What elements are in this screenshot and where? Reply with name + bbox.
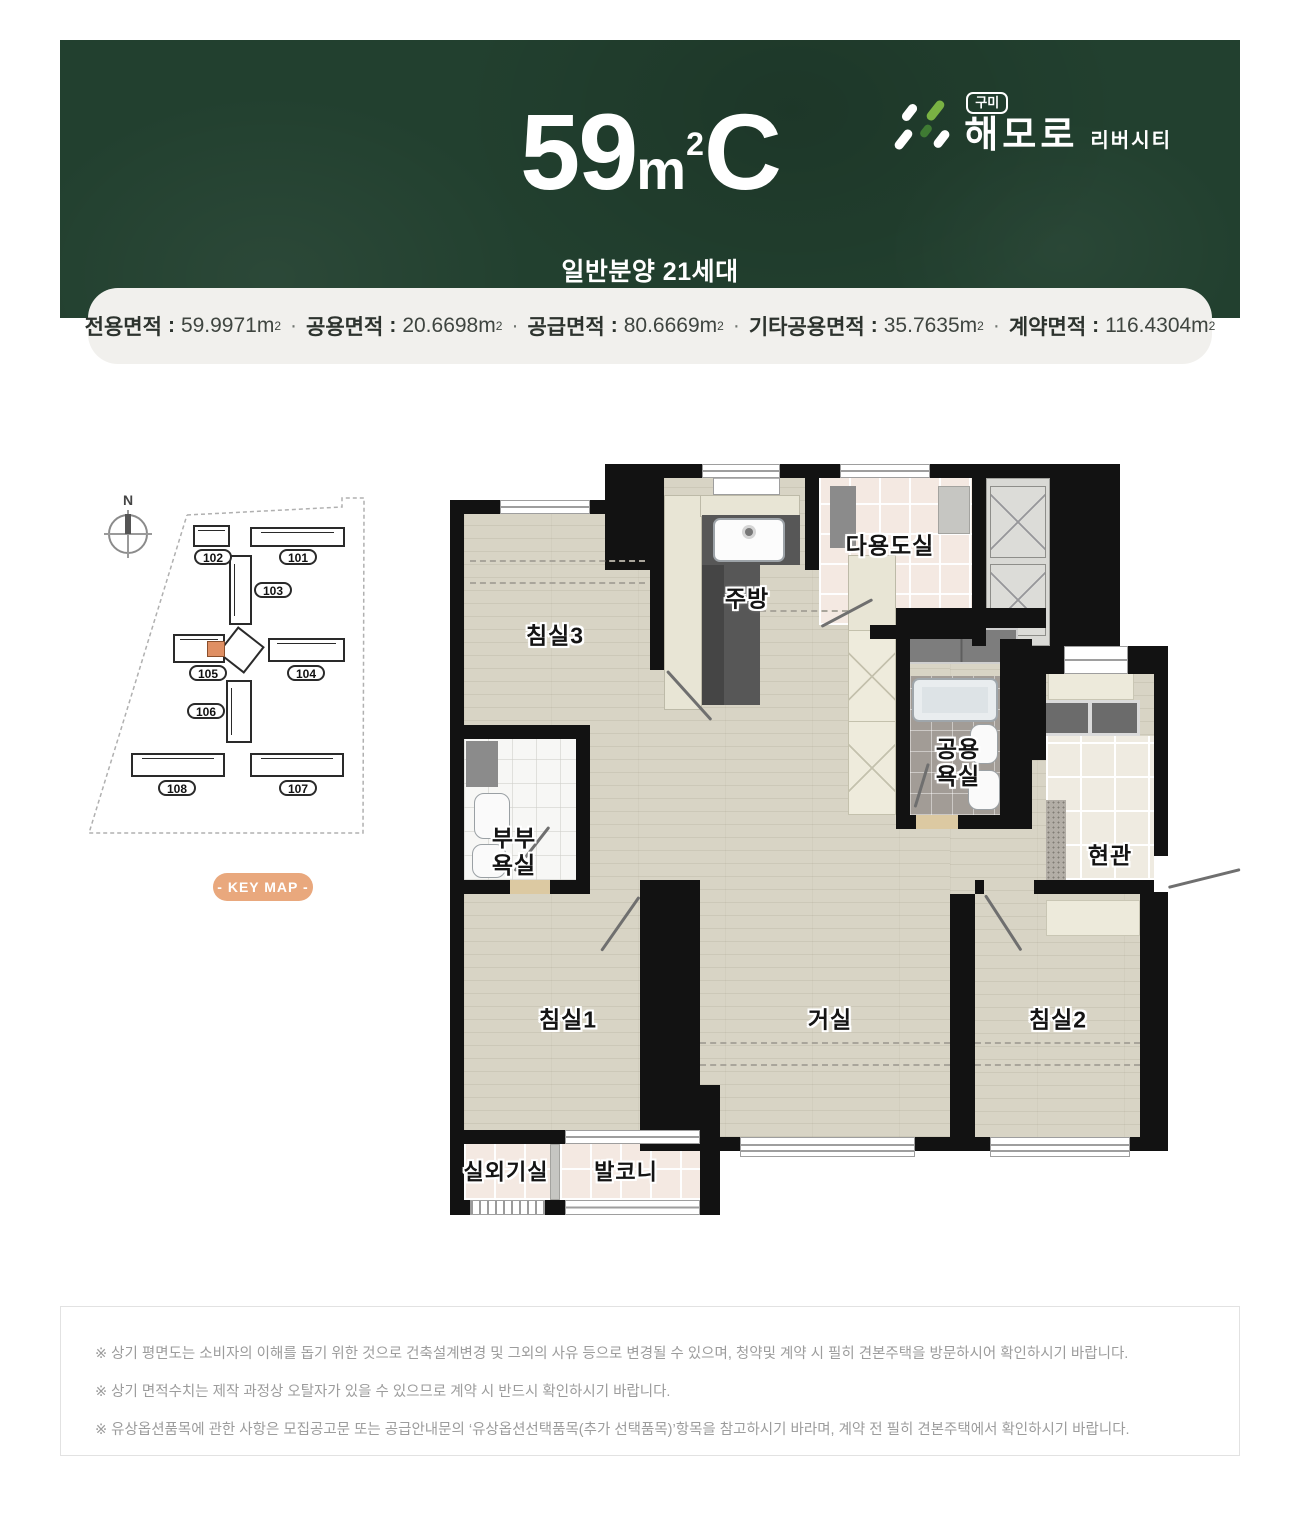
room-label-utility: 다용도실: [846, 533, 935, 560]
kitchen-counter-edge: [702, 565, 724, 705]
disclaimer-box: ※ 상기 평면도는 소비자의 이해를 돕기 위한 것으로 건축설계변경 및 그외…: [60, 1306, 1240, 1456]
wall: [450, 880, 510, 894]
dashed-line: [470, 582, 645, 584]
utility-cabinet: [938, 486, 970, 534]
room-label-shared-bath: 공용욕실: [936, 736, 980, 790]
building-102: [193, 525, 230, 547]
building-104: [268, 638, 345, 662]
elevator-shaft: [990, 486, 1046, 558]
building-101: [250, 527, 345, 547]
building-label: 101: [279, 549, 317, 565]
balcony-door-window: [565, 1130, 700, 1144]
building-103: [229, 555, 252, 625]
area-label: 공급면적: [527, 311, 604, 341]
wall: [1032, 646, 1064, 674]
living-window: [740, 1137, 915, 1157]
room-label-master-bath: 부부욕실: [492, 825, 536, 879]
room-label-balcony: 발코니: [594, 1159, 658, 1186]
built-in-cabinet: [1046, 900, 1140, 936]
wall: [450, 725, 590, 739]
floor-plan: 침실3 주방 다용도실 공용욕실 현관 부부욕실 침실1 거실 침실2 실외기실…: [450, 460, 1190, 1235]
building-label: 107: [279, 780, 317, 796]
wall: [1128, 646, 1168, 674]
header-banner: 59m2C 일반분양 21세대 구미 해모로리버시티: [60, 40, 1240, 318]
logo-icon: [898, 98, 952, 154]
wall: [1154, 892, 1168, 1151]
dashed-line: [700, 1042, 950, 1044]
page: { "header": { "unit_size": "59", "unit_m…: [0, 0, 1300, 1540]
wall: [1140, 894, 1154, 1151]
wall: [896, 639, 910, 829]
area-label: 공용면적: [306, 311, 383, 341]
logo-brand-name: 해모로: [964, 114, 1078, 155]
logo-text: 구미 해모로리버시티: [964, 92, 1172, 154]
wall: [640, 880, 700, 1151]
room-label-entrance: 현관: [1088, 843, 1132, 870]
building-108: [131, 753, 225, 777]
room-label-bedroom3: 침실3: [526, 623, 584, 650]
logo-brand-suffix: 리버시티: [1090, 131, 1172, 154]
building-label: 106: [187, 703, 225, 719]
key-map-badge: - KEY MAP -: [213, 873, 313, 901]
dashed-line: [975, 1042, 1140, 1044]
storage-column: [848, 721, 896, 815]
room-label-bedroom2: 침실2: [1029, 1007, 1087, 1034]
area-value: 116.4304: [1105, 314, 1191, 338]
wall: [1050, 464, 1120, 646]
window: [500, 500, 590, 514]
kitchen-sink: [713, 518, 785, 562]
building-label: 103: [254, 582, 292, 598]
disclaimer-line: ※ 유상옵션품목에 관한 사항은 모집공고문 또는 공급안내문의 ‘유상옵션선택…: [95, 1418, 1239, 1439]
wall: [650, 514, 664, 670]
highlighted-unit: [207, 641, 225, 657]
wall: [1000, 639, 1032, 829]
kitchen-cabinet: [700, 495, 800, 517]
brand-logo: 구미 해모로리버시티: [898, 92, 1172, 154]
wall: [450, 500, 464, 1215]
door-threshold: [916, 815, 958, 829]
area-value: 59.9971: [181, 314, 257, 338]
unit-size: 59: [520, 91, 636, 212]
kitchen-cabinet: [664, 495, 702, 710]
room-label-living: 거실: [808, 1007, 852, 1034]
area-summary-bar: 전용면적:59.9971m2·공용면적:20.6698m2·공급면적:80.66…: [88, 288, 1212, 364]
disclaimer-line: ※ 상기 면적수치는 제작 과정상 오탈자가 있을 수 있으므로 계약 시 반드…: [95, 1380, 1239, 1401]
wall: [958, 815, 1032, 829]
disclaimer-line: ※ 상기 평면도는 소비자의 이해를 돕기 위한 것으로 건축설계변경 및 그외…: [95, 1342, 1239, 1363]
window: [702, 464, 780, 478]
logo-city-badge: 구미: [966, 92, 1008, 114]
building-label: 104: [287, 665, 325, 681]
unit-subtitle: 일반분양 21세대: [60, 252, 1240, 288]
balcony-divider: [550, 1144, 560, 1200]
front-door-swing: [1168, 868, 1241, 889]
room-label-bedroom1: 침실1: [539, 1007, 597, 1034]
door-threshold: [510, 880, 550, 894]
room-label-ac-room: 실외기실: [464, 1159, 549, 1186]
area-label: 계약면적: [1009, 311, 1086, 341]
room-label-kitchen: 주방: [725, 586, 769, 613]
storage-column: [848, 630, 896, 723]
unit-sup: 2: [686, 126, 704, 162]
shower-unit: [466, 741, 498, 787]
area-value: 35.7635: [884, 314, 960, 338]
unit-measure: m: [636, 138, 686, 201]
wall: [805, 478, 819, 570]
dashed-line: [700, 1064, 950, 1066]
window: [1064, 646, 1128, 674]
area-label: 기타공용면적: [749, 311, 865, 341]
wall: [550, 880, 590, 894]
storage-column: [848, 555, 896, 632]
wall: [576, 739, 590, 894]
balcony-window: [565, 1200, 700, 1215]
bathtub: [912, 678, 998, 722]
shoe-cabinet: [1048, 672, 1134, 700]
louver-window: [470, 1200, 545, 1215]
area-value: 80.6669: [624, 314, 700, 338]
dashed-line: [975, 1064, 1140, 1066]
wall: [1034, 880, 1154, 894]
dashed-line: [760, 610, 848, 612]
window: [840, 464, 930, 478]
wall: [700, 1137, 740, 1151]
wall: [896, 608, 1046, 628]
area-label: 전용면적: [85, 311, 162, 341]
wall: [896, 815, 916, 829]
unit-letter: C: [704, 91, 780, 212]
area-value: 20.6698: [402, 314, 478, 338]
entrance-closet: [1040, 700, 1140, 736]
building-label: 108: [158, 780, 196, 796]
dashed-line: [470, 560, 645, 562]
building-106: [226, 680, 252, 743]
wall: [950, 894, 975, 1151]
wall: [605, 464, 1060, 478]
building-label: 102: [194, 549, 232, 565]
entrance-granite: [1046, 800, 1066, 880]
compass-icon: N: [108, 514, 148, 554]
building-107: [250, 753, 344, 777]
key-map: N 102 101 103 105 104 106 108 107 - KEY …: [80, 490, 390, 910]
wall: [1154, 646, 1168, 856]
wall: [975, 880, 984, 894]
building-label: 105: [189, 665, 227, 681]
bedroom2-window: [990, 1137, 1130, 1157]
